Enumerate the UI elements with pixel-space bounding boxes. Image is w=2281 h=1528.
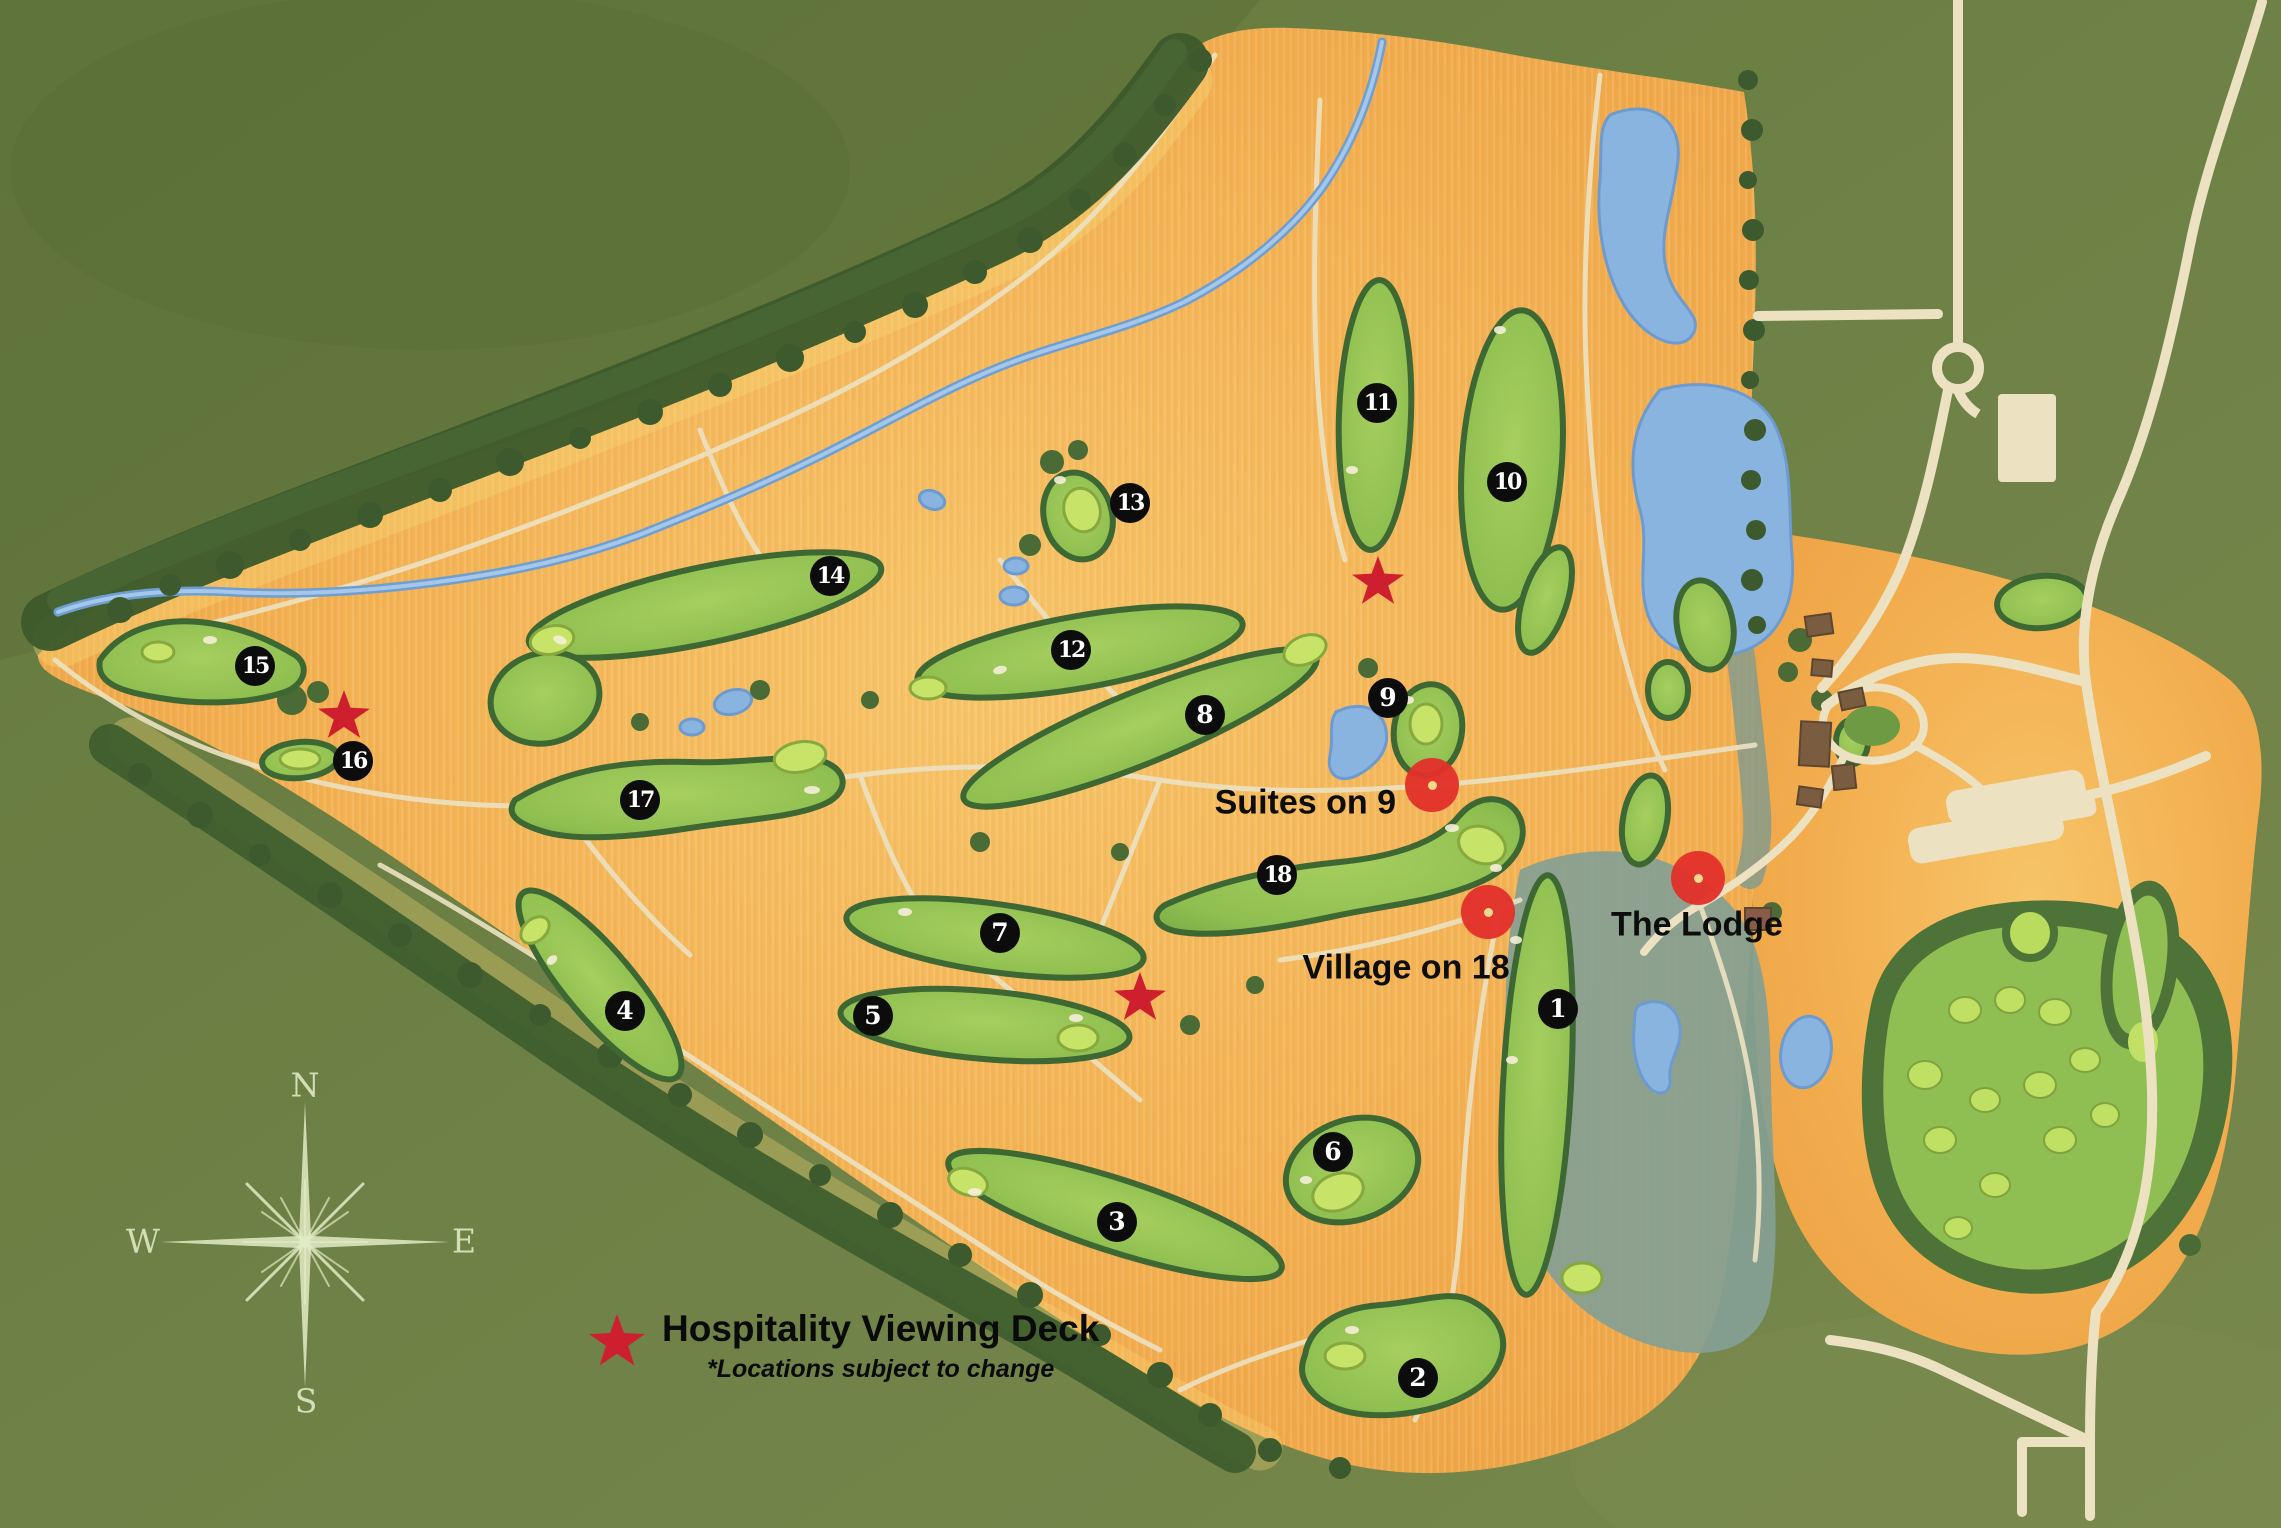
- viewing-deck-star-icon: [588, 1314, 646, 1370]
- viewing-deck-star-icon: [1113, 972, 1167, 1024]
- legend-title: Hospitality Viewing Deck: [662, 1308, 1099, 1351]
- compass-north-label: N: [291, 1066, 320, 1105]
- hole-badge-15: 15: [235, 646, 275, 686]
- hole-badge-12: 12: [1051, 630, 1091, 670]
- hole-badge-5: 5: [853, 996, 893, 1036]
- hole-badge-7: 7: [980, 913, 1020, 953]
- hole-badge-6: 6: [1313, 1132, 1353, 1172]
- compass-south-label: S: [295, 1382, 318, 1421]
- viewing-deck-star-icon: [317, 690, 371, 742]
- marker-center-dot: [1484, 908, 1493, 917]
- hole-badge-18: 18: [1257, 855, 1297, 895]
- markers-layer: 123456789101112131415161718Suites on 9Vi…: [0, 0, 2281, 1528]
- hole-badge-4: 4: [605, 991, 645, 1031]
- location-marker: [1461, 885, 1515, 939]
- hole-badge-17: 17: [620, 780, 660, 820]
- hole-badge-1: 1: [1538, 989, 1578, 1029]
- hole-badge-16: 16: [333, 741, 373, 781]
- hole-badge-10: 10: [1487, 462, 1527, 502]
- location-marker: [1405, 758, 1459, 812]
- hole-badge-14: 14: [810, 556, 850, 596]
- hole-badge-3: 3: [1097, 1202, 1137, 1242]
- hole-badge-9: 9: [1368, 678, 1408, 718]
- hole-badge-2: 2: [1398, 1358, 1438, 1398]
- viewing-deck-star-icon: [1351, 556, 1405, 608]
- compass-east-label: E: [452, 1222, 476, 1261]
- marker-center-dot: [1428, 781, 1437, 790]
- hole-badge-11: 11: [1357, 383, 1397, 423]
- marker-center-dot: [1694, 874, 1703, 883]
- legend-note: *Locations subject to change: [662, 1355, 1099, 1384]
- hole-badge-8: 8: [1185, 695, 1225, 735]
- location-label: Village on 18: [1302, 949, 1509, 988]
- hole-badge-13: 13: [1110, 483, 1150, 523]
- location-label: Suites on 9: [1215, 784, 1396, 823]
- legend: Hospitality Viewing Deck *Locations subj…: [588, 1308, 1099, 1384]
- location-label: The Lodge: [1611, 906, 1783, 945]
- golf-course-map: 123456789101112131415161718Suites on 9Vi…: [0, 0, 2281, 1528]
- location-marker: [1671, 851, 1725, 905]
- compass-west-label: W: [126, 1222, 160, 1261]
